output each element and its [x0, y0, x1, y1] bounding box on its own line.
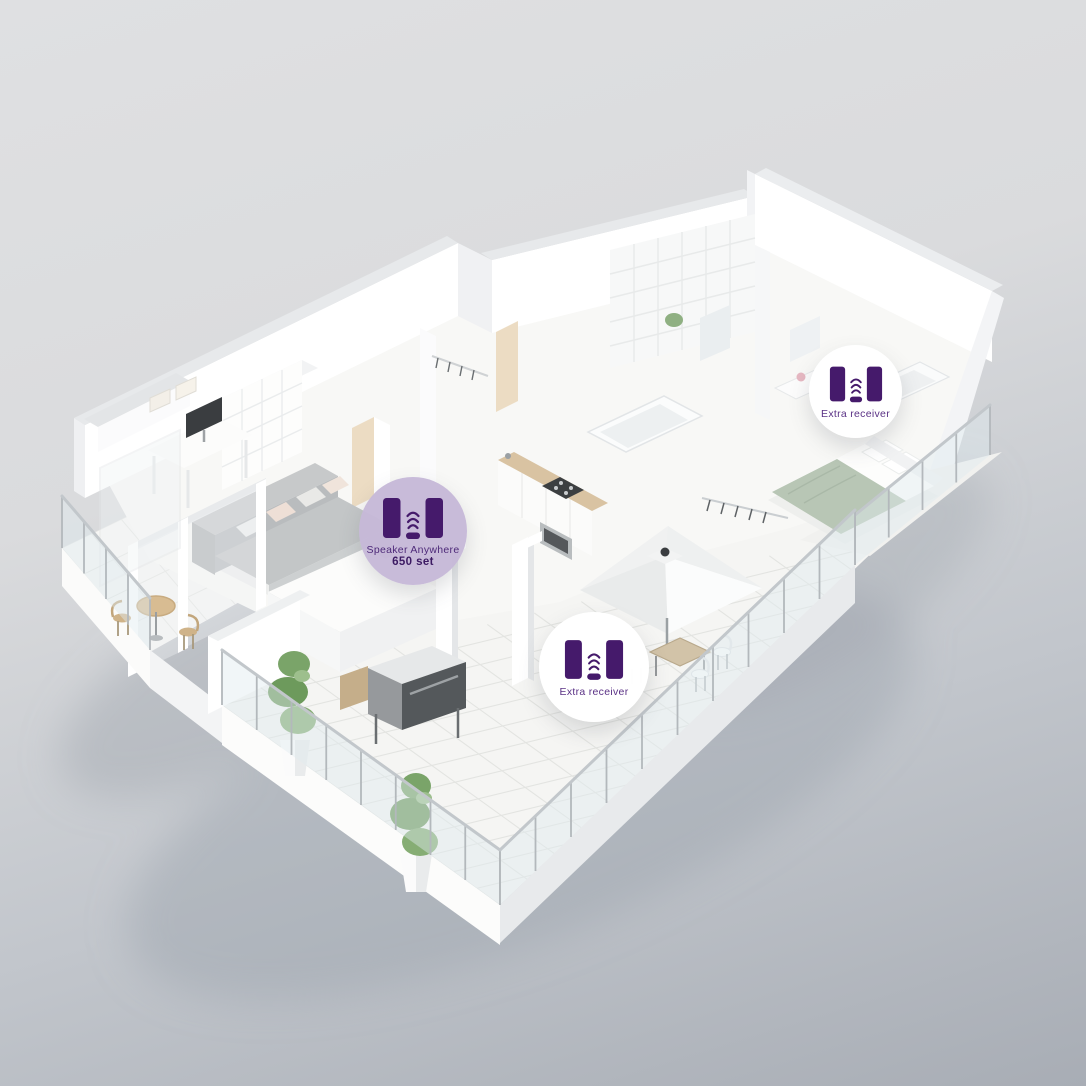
badge-label: Extra receiver — [560, 686, 629, 698]
speaker-set-hotspot[interactable]: Speaker Anywhere 650 set — [359, 477, 467, 585]
vanity-flowers — [797, 373, 806, 382]
badge-label: Extra receiver — [821, 408, 890, 420]
door-leaf — [496, 321, 518, 412]
badge-title: Speaker Anywhere — [367, 544, 460, 556]
speaker-set-icon — [381, 495, 445, 541]
decor-plant — [665, 313, 683, 327]
apartment-render — [0, 0, 1086, 1086]
umbrella-finial — [661, 548, 670, 557]
product-illustration: Speaker Anywhere 650 set Extra receiver … — [0, 0, 1086, 1086]
extra-receiver-hotspot-terrace[interactable]: Extra receiver — [539, 612, 649, 722]
door-leaf — [352, 417, 374, 508]
badge-subtitle: 650 set — [392, 556, 434, 568]
counter-decor — [505, 453, 511, 459]
extra-receiver-hotspot-bedroom[interactable]: Extra receiver — [809, 345, 902, 438]
speaker-set-icon — [828, 364, 884, 404]
speaker-set-icon — [563, 637, 625, 682]
